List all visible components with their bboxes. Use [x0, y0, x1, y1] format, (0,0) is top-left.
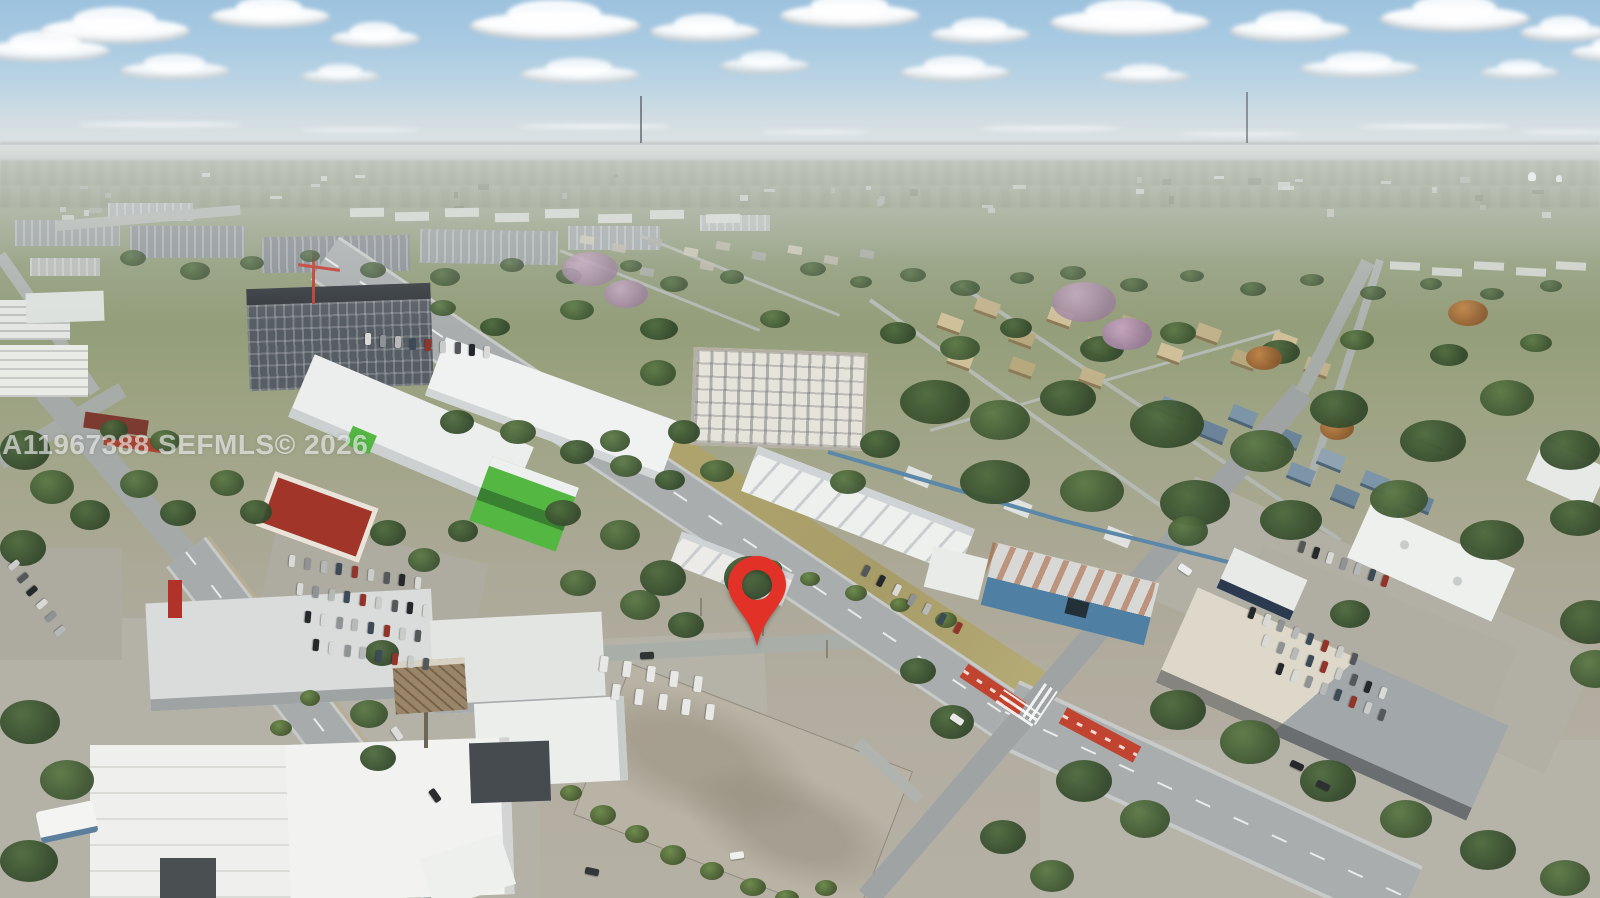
tree — [30, 470, 74, 504]
distant-building — [764, 189, 775, 193]
distant-building — [1248, 178, 1261, 185]
distant-warehouse — [395, 212, 429, 222]
tree — [562, 252, 618, 286]
tree — [600, 430, 630, 452]
distant-building — [355, 175, 365, 178]
tree — [1160, 322, 1196, 344]
tree — [1340, 330, 1374, 350]
tree — [1240, 282, 1266, 296]
red-sign — [168, 580, 182, 618]
tree — [625, 825, 649, 843]
tree — [1246, 346, 1282, 370]
house-roof-small — [751, 251, 766, 261]
cloud — [9, 31, 81, 52]
car — [328, 642, 335, 654]
house-roof-small — [699, 261, 714, 271]
tree — [360, 262, 386, 278]
tree — [800, 572, 820, 586]
house-roof-blue — [1330, 484, 1360, 510]
condo-tower-white — [0, 345, 88, 397]
tree — [950, 280, 980, 296]
distant-building — [321, 176, 327, 182]
tree — [448, 520, 478, 542]
tree — [1000, 318, 1032, 338]
cloud — [674, 14, 735, 33]
distant-building — [879, 196, 885, 204]
tree — [1300, 760, 1356, 802]
car — [425, 339, 431, 351]
distant-building — [89, 208, 102, 212]
distant-building — [1162, 179, 1171, 184]
tree — [240, 500, 272, 524]
tree — [360, 745, 396, 771]
car — [391, 653, 398, 665]
car — [383, 625, 390, 637]
tree — [830, 470, 866, 494]
distant-building — [1460, 177, 1471, 183]
tree — [1430, 344, 1468, 366]
aerial-photo: A11967388 SEFMLS© 2026 — [0, 0, 1600, 898]
distant-building — [1432, 187, 1437, 194]
distant-apartment-block — [130, 226, 245, 258]
distant-building — [1013, 185, 1026, 189]
car — [415, 577, 422, 589]
tree — [1168, 516, 1208, 546]
tree — [270, 720, 292, 736]
distant-warehouse — [545, 209, 579, 219]
tree — [560, 785, 582, 801]
office-building-white — [26, 291, 105, 324]
distant-house-row — [1556, 261, 1586, 271]
tree — [1480, 380, 1534, 416]
tree — [210, 470, 244, 496]
car — [383, 571, 390, 583]
distant-building — [1480, 205, 1486, 210]
car — [288, 555, 295, 567]
tree — [1420, 278, 1442, 290]
tree — [1400, 420, 1466, 462]
tree — [640, 360, 676, 386]
distant-warehouse — [445, 208, 479, 218]
tree — [980, 820, 1026, 854]
mls-watermark: A11967388 SEFMLS© 2026 — [2, 429, 368, 461]
tree — [1560, 600, 1600, 644]
tree — [1330, 600, 1370, 628]
car — [312, 639, 319, 651]
condo-building-center — [690, 347, 867, 451]
tree — [1520, 334, 1552, 352]
car — [469, 344, 475, 356]
car — [407, 655, 414, 667]
tree — [1150, 690, 1206, 730]
cloud — [924, 56, 985, 73]
tree — [1060, 266, 1086, 280]
distant-building — [80, 186, 88, 189]
car — [380, 335, 386, 347]
tree — [610, 455, 642, 477]
cloud-streak — [760, 130, 870, 134]
tree — [815, 880, 837, 896]
tree — [900, 380, 970, 424]
distant-house-row — [1474, 261, 1504, 271]
tree — [1120, 278, 1148, 292]
tree — [1040, 380, 1096, 416]
distant-warehouse — [350, 208, 384, 218]
distant-treeline — [0, 160, 1600, 186]
tree — [1540, 860, 1590, 896]
tree — [660, 276, 688, 292]
car — [640, 652, 654, 660]
tree — [0, 700, 60, 744]
car — [368, 622, 375, 634]
house-roof-small — [859, 249, 874, 259]
tree — [800, 262, 826, 276]
distant-building — [1214, 176, 1224, 179]
tree — [1030, 860, 1074, 892]
tree — [1380, 800, 1432, 838]
tree — [940, 336, 980, 360]
tree — [240, 256, 264, 270]
tree — [120, 250, 146, 266]
car — [296, 583, 303, 595]
distant-warehouse — [650, 210, 684, 220]
house-roof-tan — [1194, 322, 1222, 345]
distant-building — [1295, 179, 1303, 182]
water-tower — [1528, 172, 1536, 181]
house-roof-small — [639, 267, 654, 277]
house-roof-small — [715, 241, 730, 251]
cloud — [507, 0, 601, 27]
house-roof-small — [823, 255, 838, 265]
tree — [900, 658, 936, 684]
tree — [1130, 400, 1204, 448]
tree — [1550, 500, 1600, 536]
tree — [1540, 280, 1562, 292]
showroom-canopy — [469, 741, 551, 804]
distant-building — [1532, 190, 1544, 194]
cloud — [350, 22, 400, 39]
cloud — [1085, 0, 1173, 24]
cloud-streak — [80, 122, 240, 127]
tree — [1220, 720, 1280, 764]
tree — [350, 700, 388, 728]
tree — [0, 530, 46, 566]
tree — [1180, 270, 1204, 282]
house-roof-blue — [1316, 448, 1346, 474]
billboard — [392, 658, 467, 715]
tree — [180, 262, 210, 280]
car — [328, 588, 335, 600]
distant-apartment-block — [420, 229, 559, 265]
distant-building — [740, 195, 748, 200]
tree — [845, 585, 867, 601]
car — [484, 345, 490, 357]
distant-building — [562, 193, 567, 199]
tree — [668, 420, 700, 444]
cloud — [144, 54, 205, 71]
tree — [930, 705, 974, 739]
tree — [408, 548, 440, 572]
car — [399, 627, 406, 639]
cloud — [952, 18, 1007, 35]
tree — [900, 268, 926, 282]
tree — [880, 322, 916, 344]
car — [344, 644, 351, 656]
car — [454, 342, 460, 354]
house-roof-small — [611, 243, 626, 253]
tree — [700, 862, 724, 880]
tree — [1310, 390, 1368, 428]
cloud-streak — [1180, 132, 1300, 136]
car — [304, 558, 311, 570]
tree — [500, 420, 536, 444]
tree — [655, 470, 685, 490]
utility-pole — [826, 640, 828, 658]
cloud-streak — [300, 128, 420, 132]
car — [423, 605, 430, 617]
tree — [640, 560, 686, 596]
car — [336, 616, 343, 628]
tree — [300, 690, 320, 706]
distant-apartment-block — [30, 258, 100, 276]
distant-building — [866, 186, 871, 189]
tree — [1540, 430, 1600, 470]
utility-pole — [700, 598, 702, 616]
tree — [545, 500, 581, 526]
tree — [120, 470, 158, 498]
distant-house-row — [1390, 261, 1420, 271]
distant-building — [1137, 177, 1141, 182]
tree — [160, 500, 196, 526]
distant-building — [478, 184, 489, 189]
tree — [1010, 272, 1034, 284]
car — [439, 341, 445, 353]
cloud-streak — [980, 126, 1120, 131]
distant-building — [270, 196, 282, 199]
antenna-tower — [640, 96, 642, 143]
distant-building — [1381, 181, 1391, 184]
cloud-streak — [520, 124, 670, 129]
tree — [430, 268, 460, 286]
tree — [1230, 430, 1294, 472]
tree — [590, 805, 616, 825]
distant-house-row — [1432, 267, 1462, 277]
car — [304, 611, 311, 623]
tree — [480, 318, 510, 336]
tree — [440, 410, 474, 434]
tree — [740, 878, 766, 896]
tree — [370, 520, 406, 546]
tree — [560, 300, 594, 320]
tree — [890, 598, 910, 612]
distant-building — [1475, 195, 1484, 201]
tree — [1480, 288, 1504, 300]
antenna-tower — [1246, 92, 1248, 143]
cloud — [1326, 52, 1392, 69]
car — [410, 338, 416, 350]
distant-warehouse — [598, 214, 632, 224]
tree — [40, 760, 94, 800]
tree — [560, 440, 594, 464]
distant-building — [105, 193, 111, 197]
cloud-streak — [1360, 124, 1510, 129]
tree — [660, 845, 686, 865]
distant-building — [1136, 189, 1144, 194]
car — [375, 597, 382, 609]
tree — [1260, 500, 1322, 540]
distant-warehouse — [495, 213, 529, 223]
distant-building — [202, 173, 210, 178]
tree — [70, 500, 110, 530]
tree — [620, 260, 642, 272]
cloud — [1256, 11, 1322, 32]
distant-building — [454, 192, 458, 198]
tree — [604, 280, 648, 308]
tree — [1460, 830, 1516, 870]
distant-building — [1542, 212, 1551, 218]
distant-house-row — [1516, 267, 1546, 277]
tree — [1060, 470, 1124, 512]
tree — [860, 430, 900, 458]
distant-building — [910, 189, 917, 196]
car — [584, 867, 599, 877]
distant-treeline — [0, 186, 1600, 208]
car — [391, 599, 398, 611]
cloud-streak — [1520, 130, 1600, 134]
map-pin-icon — [728, 556, 786, 646]
house-roof-small — [787, 245, 802, 255]
distant-building — [1169, 196, 1174, 203]
tree — [1360, 286, 1386, 300]
tree — [560, 570, 596, 596]
tree — [960, 460, 1030, 504]
car — [320, 560, 327, 572]
car — [395, 336, 401, 348]
house-roof-tan — [973, 296, 1001, 319]
distant-building — [311, 184, 320, 187]
house-roof-blue — [1228, 404, 1258, 430]
distant-building — [1327, 209, 1334, 217]
tree — [1460, 520, 1524, 560]
tree — [600, 520, 640, 550]
tree — [1448, 300, 1488, 326]
tree — [1102, 318, 1152, 350]
distant-building — [988, 208, 995, 213]
car — [312, 586, 319, 598]
car — [352, 566, 359, 578]
cloud — [1540, 16, 1590, 33]
tree — [1052, 282, 1116, 322]
distant-building — [614, 174, 619, 177]
house-roof-tan — [936, 312, 964, 335]
tree — [640, 318, 678, 340]
distant-building — [1283, 186, 1294, 190]
tree — [1300, 274, 1324, 286]
white-shop — [924, 546, 988, 600]
distant-warehouse — [706, 214, 740, 224]
car — [376, 650, 383, 662]
tree — [720, 270, 744, 284]
car — [365, 333, 371, 345]
distant-building — [60, 207, 67, 211]
distant-building — [831, 188, 835, 193]
tree — [760, 310, 790, 328]
tree — [430, 300, 456, 316]
tree — [1120, 800, 1170, 838]
water-tower — [1556, 175, 1562, 182]
tree — [300, 250, 320, 262]
tree — [668, 612, 704, 638]
car — [360, 594, 367, 606]
house-roof-tan — [1008, 356, 1036, 379]
tree — [1370, 480, 1428, 518]
car — [367, 569, 374, 581]
tree — [970, 400, 1030, 440]
dealership-entrance — [160, 858, 216, 898]
cloud — [73, 7, 156, 32]
car — [320, 614, 327, 626]
tree — [0, 840, 58, 882]
tree — [1056, 760, 1112, 802]
tree — [700, 460, 734, 482]
cloud — [546, 58, 612, 75]
tree — [850, 276, 872, 288]
tree — [500, 258, 524, 272]
